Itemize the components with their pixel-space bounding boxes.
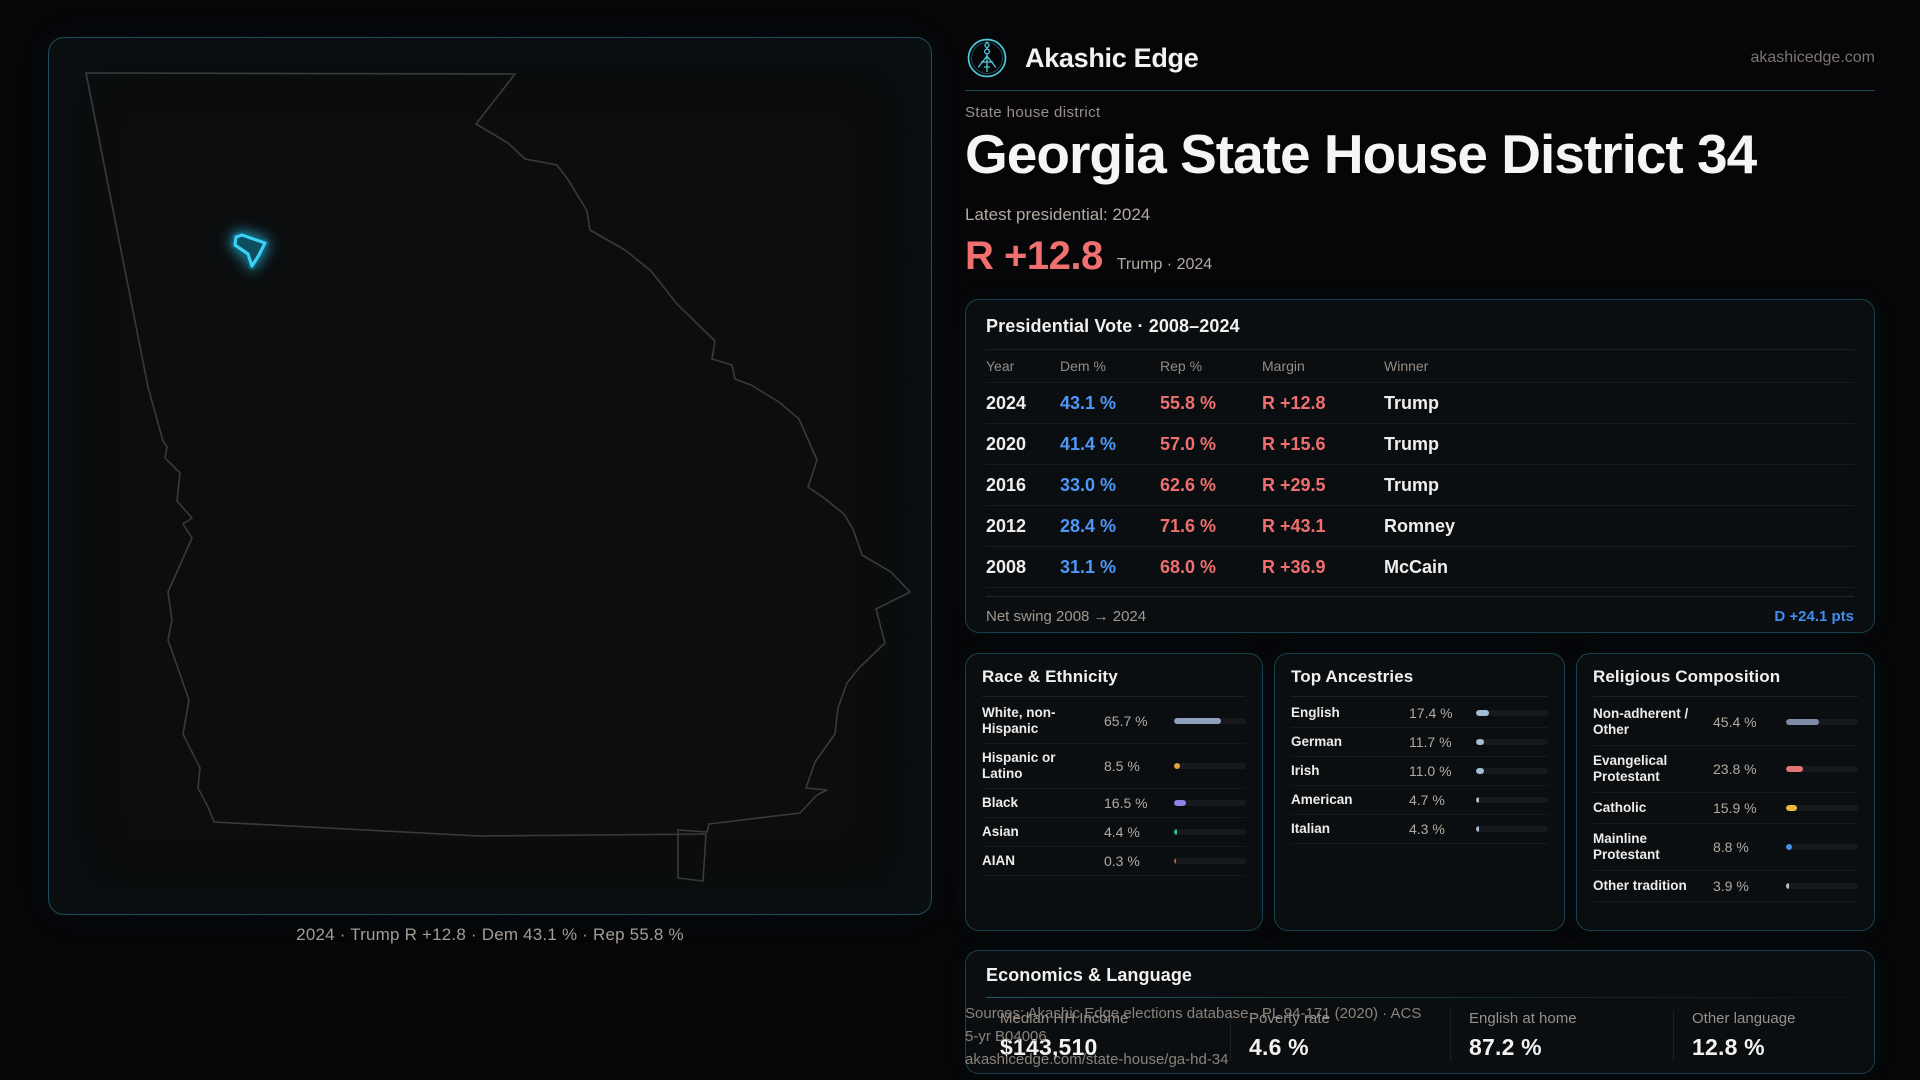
ancestry-row: Italian 4.3 % — [1291, 815, 1548, 844]
ancestry-bar — [1476, 768, 1548, 774]
race-bar — [1174, 718, 1246, 724]
stat-other-language: Other language 12.8 % — [1673, 1010, 1854, 1061]
latest-presidential-label: Latest presidential: 2024 — [965, 205, 1150, 225]
net-swing-value: D +24.1 pts — [1774, 608, 1854, 625]
race-row: Asian 4.4 % — [982, 818, 1246, 847]
presidential-panel-title: Presidential Vote · 2008–2024 — [986, 316, 1854, 337]
ancestries-panel: Top Ancestries English 17.4 % German 11.… — [1274, 653, 1565, 931]
table-row-2012: 2012 28.4 % 71.6 % R +43.1 Romney — [986, 506, 1854, 547]
akashic-edge-logo-icon — [965, 36, 1009, 80]
col-rep: Rep % — [1160, 358, 1262, 374]
georgia-state-outline — [86, 73, 910, 881]
brand-name: Akashic Edge — [1025, 43, 1198, 74]
religion-row: Non-adherent / Other 45.4 % — [1593, 699, 1858, 746]
ancestry-row: German 11.7 % — [1291, 728, 1548, 757]
presidential-vote-panel: Presidential Vote · 2008–2024 Year Dem %… — [965, 299, 1875, 633]
table-header-row: Year Dem % Rep % Margin Winner — [986, 350, 1854, 382]
ancestry-bar — [1476, 797, 1548, 803]
race-ethnicity-panel: Race & Ethnicity White, non-Hispanic 65.… — [965, 653, 1263, 931]
ancestry-bar — [1476, 739, 1548, 745]
race-bar — [1174, 858, 1246, 864]
brand-domain-link[interactable]: akashicedge.com — [1750, 49, 1875, 67]
col-margin: Margin — [1262, 358, 1384, 374]
race-bar — [1174, 829, 1246, 835]
divider — [1291, 696, 1548, 697]
ancestry-row: American 4.7 % — [1291, 786, 1548, 815]
table-row-2008: 2008 31.1 % 68.0 % R +36.9 McCain — [986, 547, 1854, 588]
col-dem: Dem % — [1060, 358, 1160, 374]
headline-margin: R +12.8 Trump · 2024 — [965, 234, 1212, 279]
religion-bar — [1786, 719, 1858, 725]
table-row-2020: 2020 41.4 % 57.0 % R +15.6 Trump — [986, 424, 1854, 465]
economics-panel: Economics & Language Median HH Income $1… — [965, 950, 1875, 1074]
net-swing-label: Net swing 2008 → 2024 — [986, 608, 1146, 625]
district-type-eyebrow: State house district — [965, 104, 1101, 121]
religion-row: Other tradition 3.9 % — [1593, 871, 1858, 902]
race-row: White, non-Hispanic 65.7 % — [982, 699, 1246, 744]
divider — [982, 696, 1246, 697]
col-year: Year — [986, 358, 1060, 374]
economics-panel-title: Economics & Language — [986, 965, 1854, 986]
header-divider — [965, 90, 1875, 91]
ancestries-panel-title: Top Ancestries — [1291, 667, 1548, 687]
race-row: Hispanic or Latino 8.5 % — [982, 744, 1246, 789]
race-row: AIAN 0.3 % — [982, 847, 1246, 876]
race-row: Black 16.5 % — [982, 789, 1246, 818]
race-bar — [1174, 763, 1246, 769]
map-caption: 2024 · Trump R +12.8 · Dem 43.1 % · Rep … — [48, 925, 932, 945]
margin-value: R +12.8 — [965, 234, 1103, 279]
religion-row: Mainline Protestant 8.8 % — [1593, 824, 1858, 871]
site-header: Akashic Edge akashicedge.com — [965, 33, 1875, 83]
race-panel-title: Race & Ethnicity — [982, 667, 1246, 687]
net-swing-row: Net swing 2008 → 2024 D +24.1 pts — [986, 596, 1854, 625]
divider — [1593, 696, 1858, 697]
ancestry-row: English 17.4 % — [1291, 699, 1548, 728]
margin-context: Trump · 2024 — [1117, 256, 1212, 274]
religion-bar — [1786, 844, 1858, 850]
table-row-2024: 2024 43.1 % 55.8 % R +12.8 Trump — [986, 383, 1854, 424]
religion-bar — [1786, 805, 1858, 811]
religion-panel-title: Religious Composition — [1593, 667, 1858, 687]
table-row-2016: 2016 33.0 % 62.6 % R +29.5 Trump — [986, 465, 1854, 506]
religion-bar — [1786, 883, 1858, 889]
religion-row: Catholic 15.9 % — [1593, 793, 1858, 824]
col-winner: Winner — [1384, 358, 1854, 374]
georgia-map — [49, 38, 933, 914]
ancestry-bar — [1476, 826, 1548, 832]
religion-bar — [1786, 766, 1858, 772]
divider — [986, 997, 1854, 998]
religion-row: Evangelical Protestant 23.8 % — [1593, 746, 1858, 793]
page-title: Georgia State House District 34 — [965, 122, 1756, 186]
ancestry-bar — [1476, 710, 1548, 716]
ancestry-row: Irish 11.0 % — [1291, 757, 1548, 786]
race-bar — [1174, 800, 1246, 806]
stat-poverty-rate: Poverty rate 4.6 % — [1230, 1010, 1450, 1061]
stat-english-at-home: English at home 87.2 % — [1450, 1010, 1673, 1061]
economics-stats: Median HH Income $143,510 Poverty rate 4… — [986, 1010, 1854, 1061]
district-34-shape[interactable] — [235, 235, 265, 266]
district-map-panel — [48, 37, 932, 915]
religion-panel: Religious Composition Non-adherent / Oth… — [1576, 653, 1875, 931]
stat-median-income: Median HH Income $143,510 — [986, 1010, 1230, 1061]
